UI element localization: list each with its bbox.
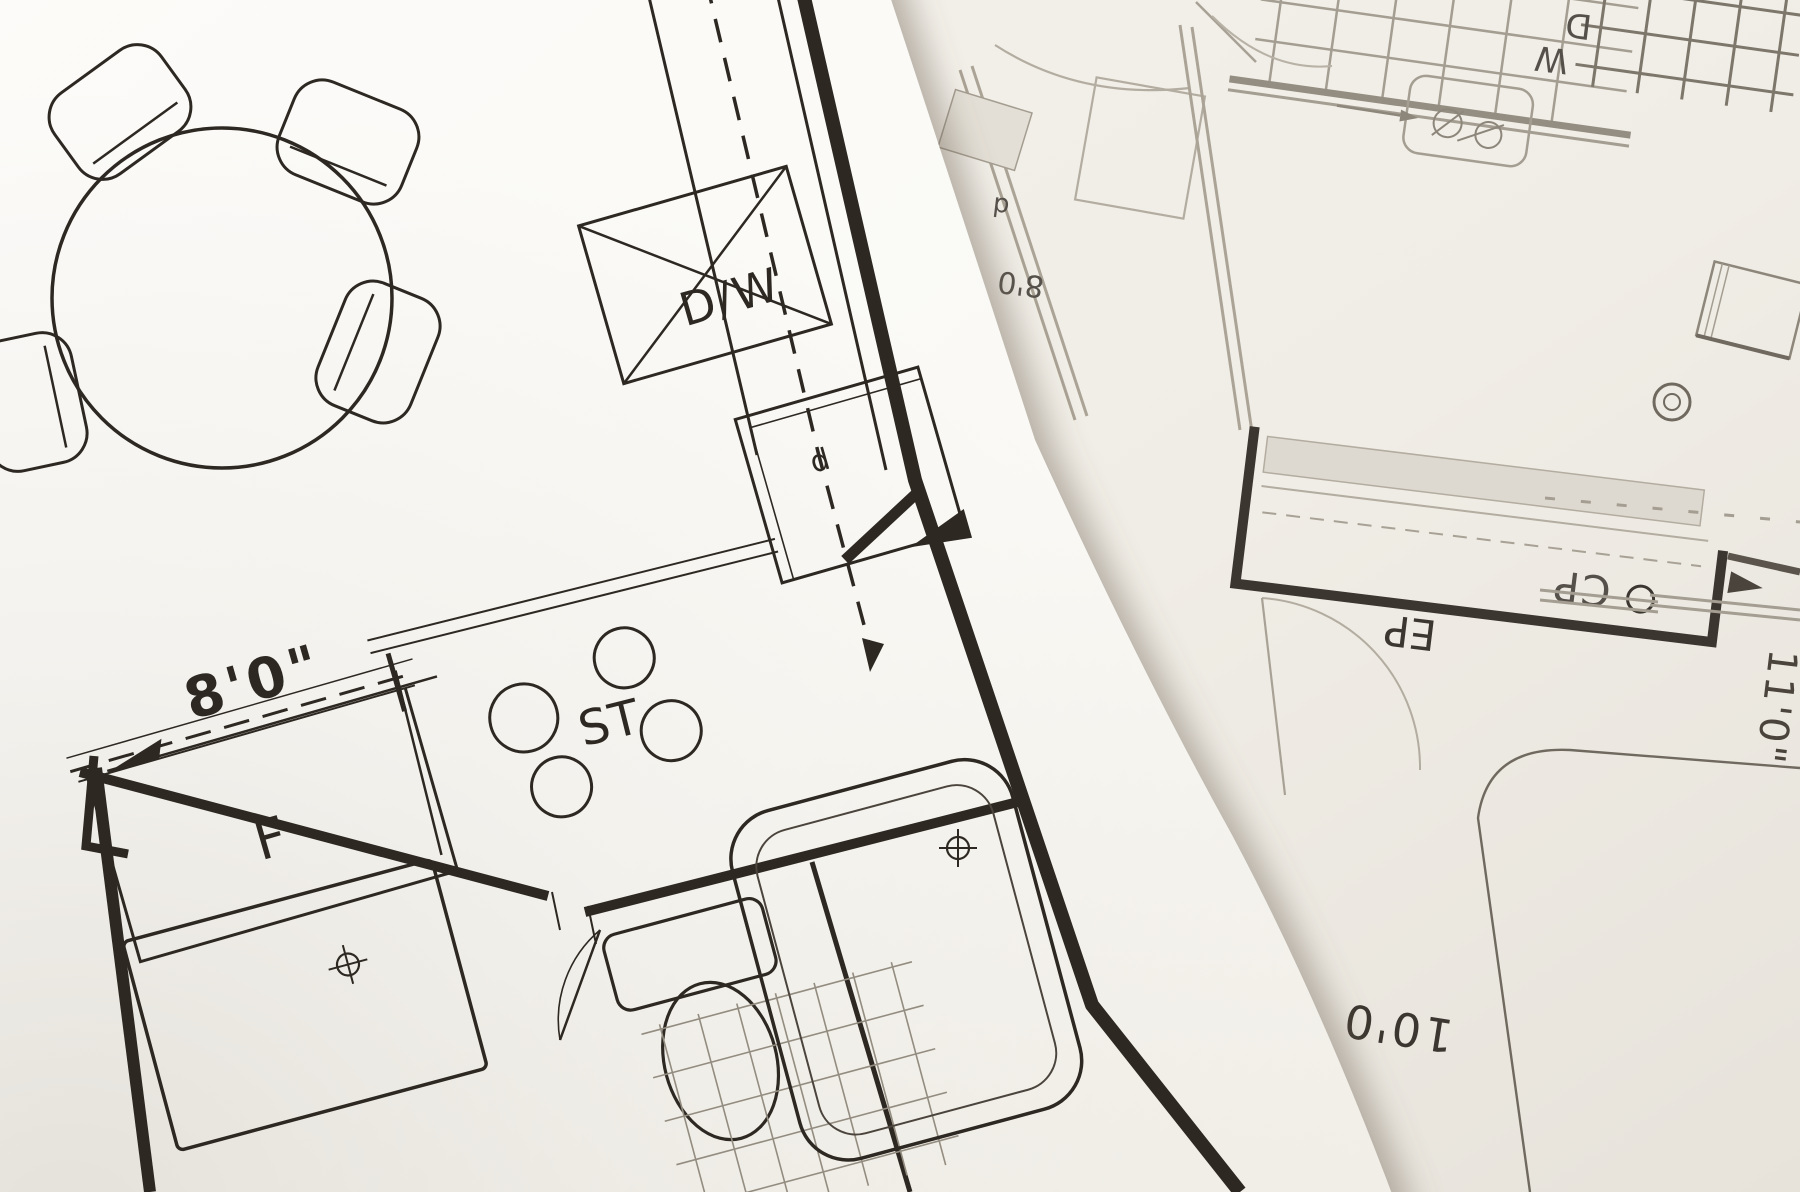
electrical-panel-label: EP bbox=[1382, 605, 1439, 660]
edge-dimension-label: 8'0 bbox=[996, 263, 1046, 303]
blueprint-canvas: W D d 8'0 bbox=[0, 0, 1800, 1192]
svg-text:8'0: 8'0 bbox=[996, 263, 1046, 303]
svg-text:D: D bbox=[1563, 3, 1594, 46]
dryer-label: D bbox=[1563, 3, 1594, 46]
svg-text:EP: EP bbox=[1382, 605, 1439, 660]
blueprint-photo: { "scene": { "description": "Photograph … bbox=[0, 0, 1800, 1192]
